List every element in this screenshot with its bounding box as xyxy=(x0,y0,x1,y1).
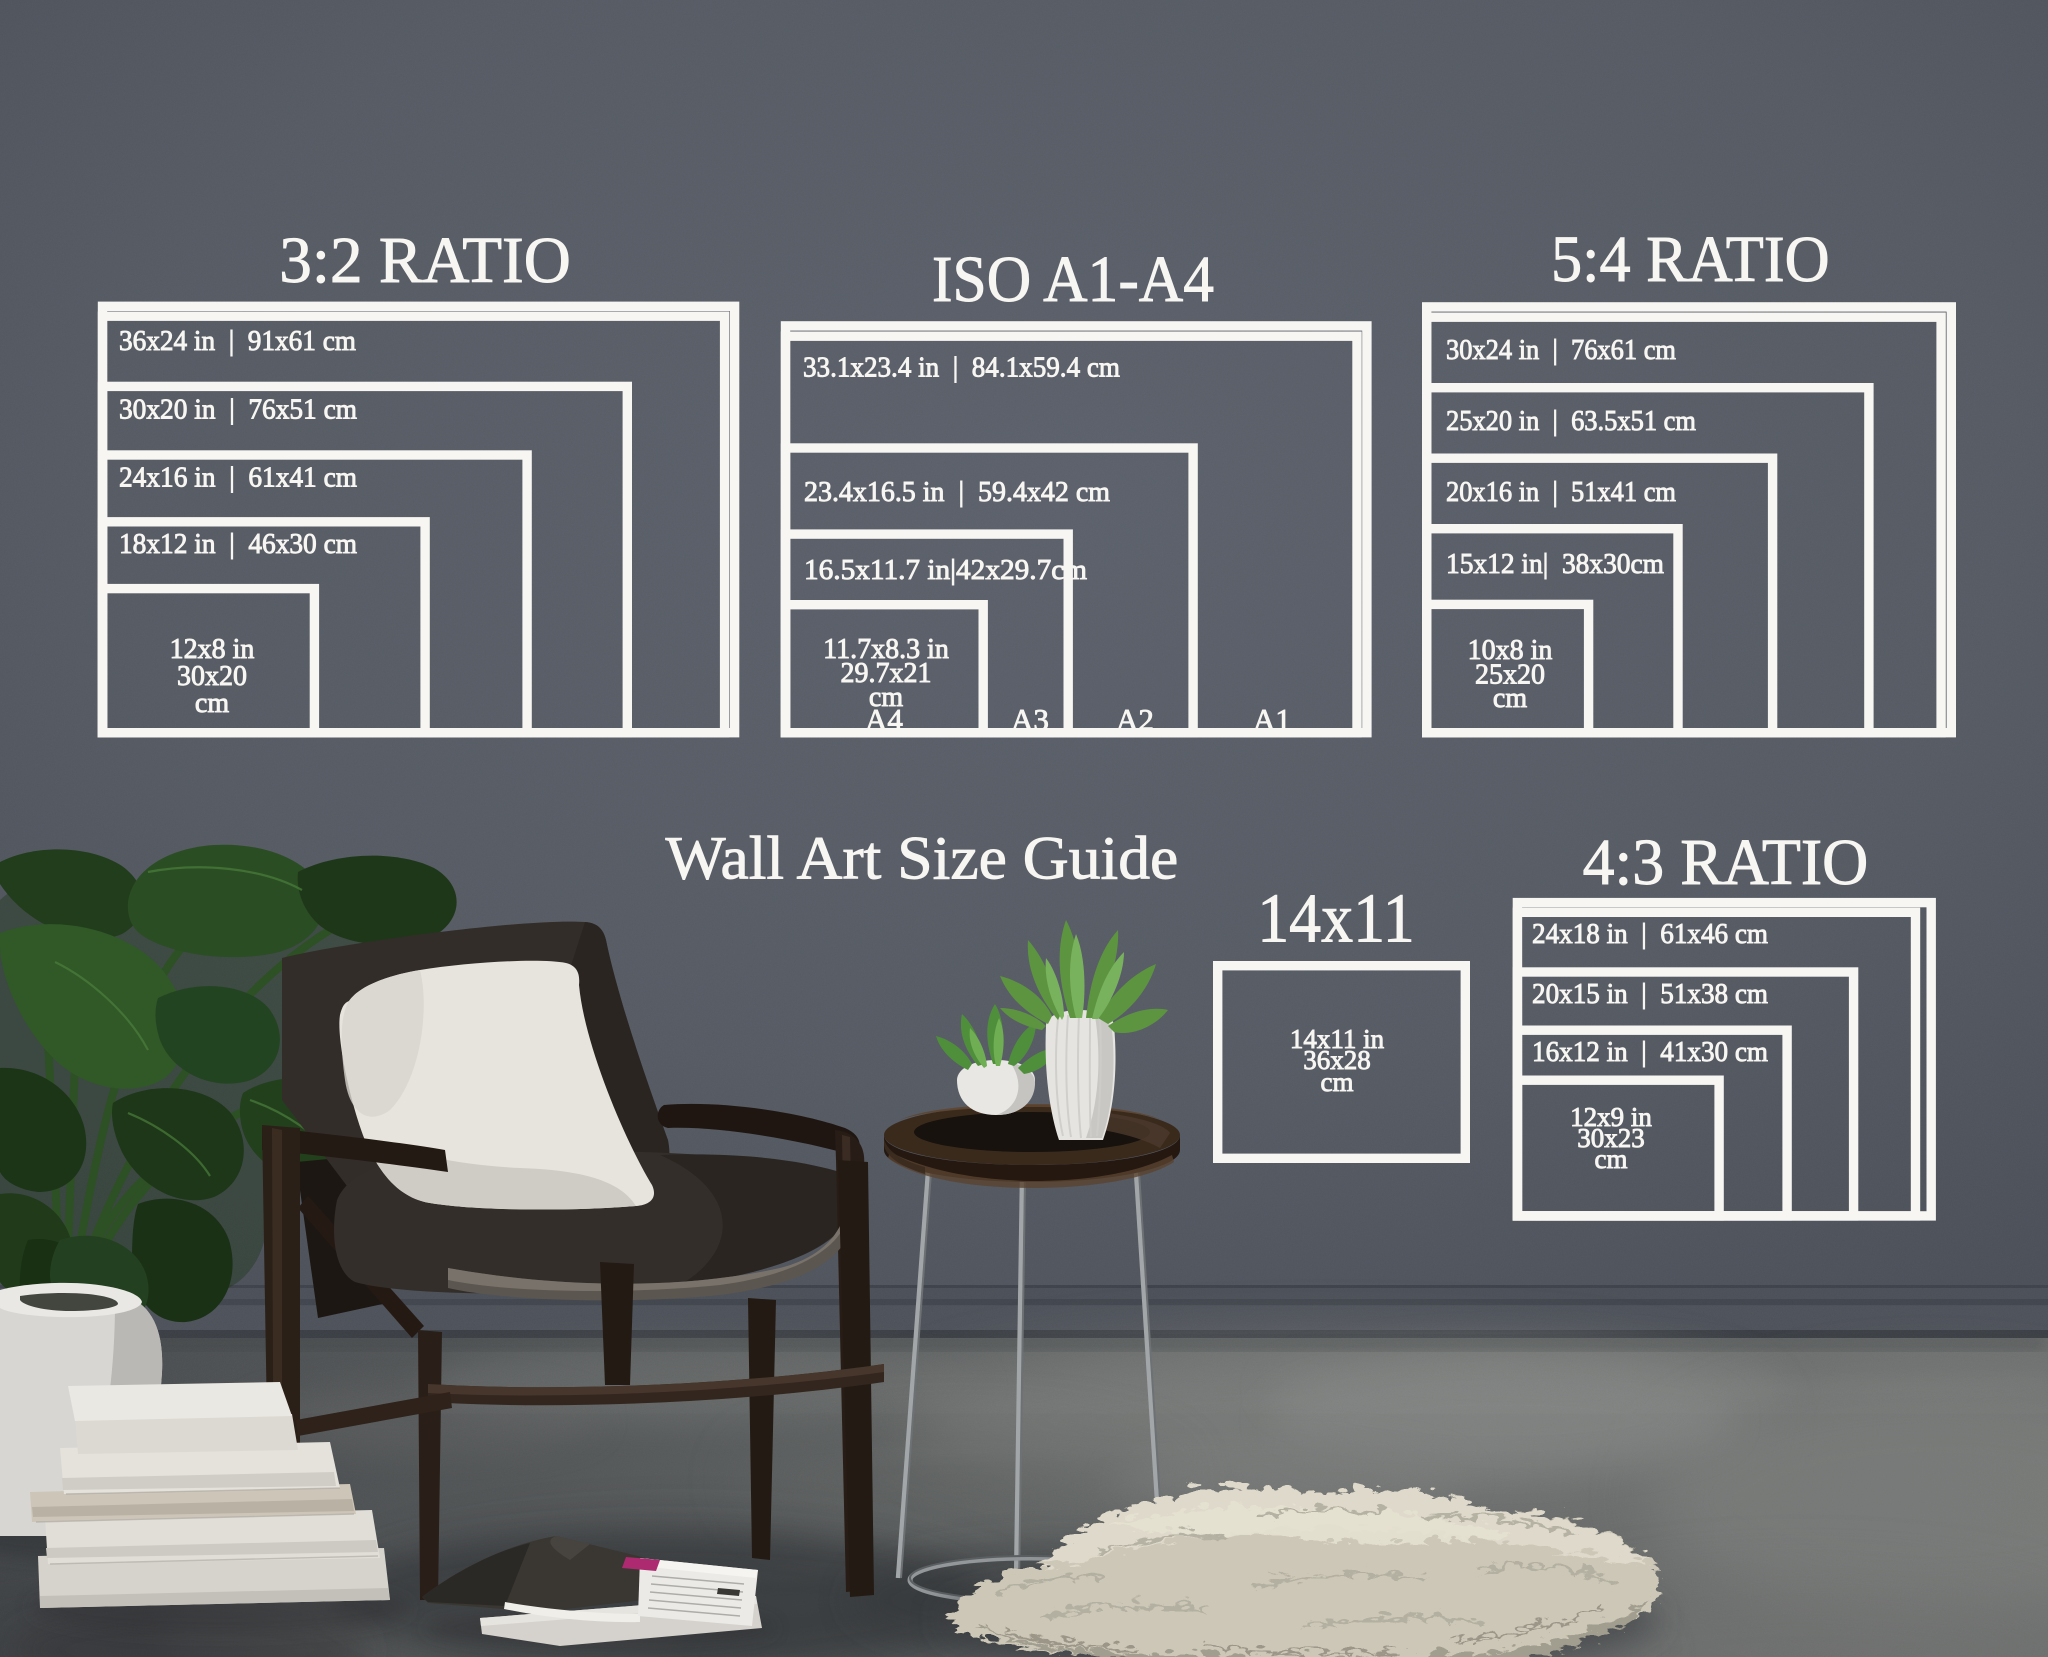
svg-text:cm: cm xyxy=(1595,1144,1628,1174)
svg-text:5:4 RATIO: 5:4 RATIO xyxy=(1551,223,1830,296)
svg-text:36x24 in | 91x61 cm: 36x24 in | 91x61 cm xyxy=(119,326,356,357)
svg-text:30x24 in | 76x61 cm: 30x24 in | 76x61 cm xyxy=(1446,335,1676,366)
svg-text:24x18 in | 61x46 cm: 24x18 in | 61x46 cm xyxy=(1532,919,1768,950)
svg-text:cm: cm xyxy=(1321,1067,1354,1097)
svg-text:20x15 in | 51x38 cm: 20x15 in | 51x38 cm xyxy=(1532,979,1768,1010)
svg-text:15x12 in| 38x30cm: 15x12 in| 38x30cm xyxy=(1446,549,1664,580)
svg-text:cm: cm xyxy=(1493,683,1527,714)
svg-text:30x20 in | 76x51 cm: 30x20 in | 76x51 cm xyxy=(119,394,357,425)
svg-text:A1: A1 xyxy=(1253,702,1291,737)
svg-text:A4: A4 xyxy=(865,702,903,737)
svg-text:18x12 in | 46x30 cm: 18x12 in | 46x30 cm xyxy=(119,529,357,560)
svg-text:A2: A2 xyxy=(1116,702,1154,737)
svg-text:Wall Art Size Guide: Wall Art Size Guide xyxy=(666,825,1179,892)
svg-text:14x11: 14x11 xyxy=(1257,881,1415,958)
svg-text:16.5x11.7 in|42x29.7cm: 16.5x11.7 in|42x29.7cm xyxy=(804,555,1087,586)
svg-text:25x20 in | 63.5x51 cm: 25x20 in | 63.5x51 cm xyxy=(1446,406,1696,437)
svg-text:3:2 RATIO: 3:2 RATIO xyxy=(279,224,571,297)
svg-text:A3: A3 xyxy=(1011,702,1049,737)
svg-text:cm: cm xyxy=(195,688,229,719)
svg-text:16x12 in | 41x30 cm: 16x12 in | 41x30 cm xyxy=(1532,1037,1768,1068)
svg-text:20x16 in | 51x41 cm: 20x16 in | 51x41 cm xyxy=(1446,477,1676,508)
svg-text:24x16 in | 61x41 cm: 24x16 in | 61x41 cm xyxy=(119,462,357,493)
svg-text:4:3 RATIO: 4:3 RATIO xyxy=(1583,826,1869,899)
svg-text:ISO A1-A4: ISO A1-A4 xyxy=(932,243,1214,316)
svg-text:23.4x16.5 in | 59.4x42 cm: 23.4x16.5 in | 59.4x42 cm xyxy=(804,477,1110,508)
svg-text:33.1x23.4 in | 84.1x59.4 cm: 33.1x23.4 in | 84.1x59.4 cm xyxy=(803,353,1120,384)
